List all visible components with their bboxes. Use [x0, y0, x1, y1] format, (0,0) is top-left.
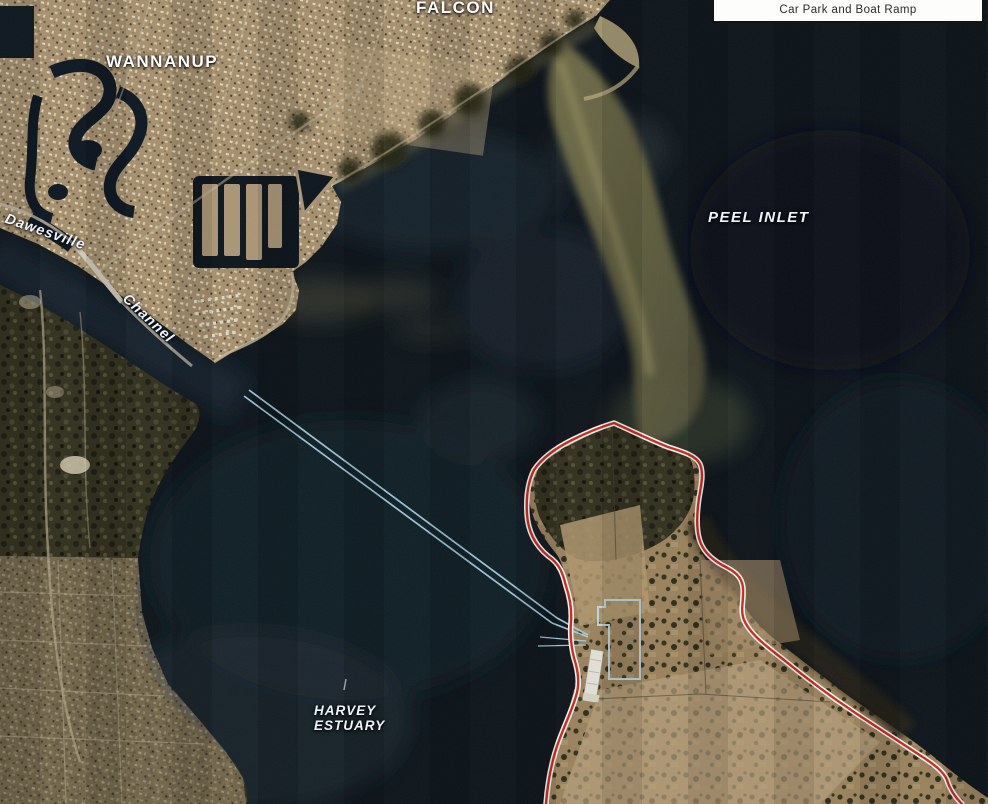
aerial-photo [0, 0, 988, 804]
photo-grain [0, 0, 988, 804]
legend-item-label: Car Park and Boat Ramp [779, 4, 916, 21]
map-canvas: FALCON WANNANUP PEEL INLET Dawesville Ch… [0, 0, 988, 804]
legend-box: Car Park and Boat Ramp [712, 0, 985, 23]
